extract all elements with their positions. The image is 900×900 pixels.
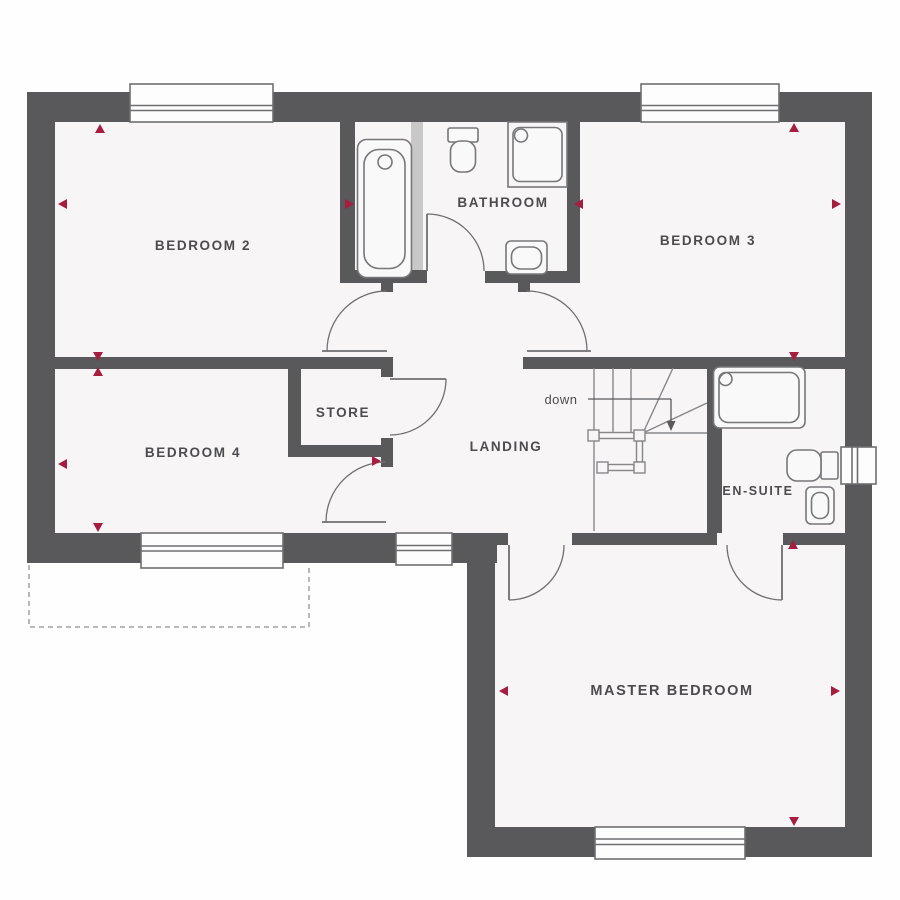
window-bedroom4-bottom bbox=[141, 533, 283, 568]
window-bedroom2-top bbox=[130, 84, 273, 122]
wall-master-top-1 bbox=[452, 533, 508, 545]
basin-ensuite-icon bbox=[806, 487, 834, 524]
wall-left bbox=[27, 92, 55, 563]
dashed-outline bbox=[29, 565, 309, 627]
handrail bbox=[599, 433, 634, 439]
window-master-bottom bbox=[595, 827, 745, 859]
room-label-bedroom2: BEDROOM 2 bbox=[155, 238, 251, 253]
room-label-landing: LANDING bbox=[470, 439, 543, 454]
floor-area bbox=[40, 100, 872, 857]
room-label-store: STORE bbox=[316, 405, 370, 420]
wall-bath-niche-east bbox=[411, 122, 423, 270]
wall-bed2-door-stub bbox=[381, 357, 393, 377]
window-ensuite-right bbox=[841, 447, 876, 484]
newel-post bbox=[588, 430, 599, 441]
floor-plan-canvas: BEDROOM 2 BATHROOM BEDROOM 3 BEDROOM 4 S… bbox=[0, 0, 900, 900]
handrail bbox=[637, 441, 643, 462]
wall-master-top-2 bbox=[572, 533, 717, 545]
wall-master-west bbox=[467, 533, 495, 857]
basin-bathroom-icon bbox=[506, 241, 547, 274]
newel-post bbox=[597, 462, 608, 473]
shower-ensuite-icon bbox=[714, 367, 806, 428]
room-label-ensuite: EN-SUITE bbox=[722, 484, 793, 498]
floor-plan: BEDROOM 2 BATHROOM BEDROOM 3 BEDROOM 4 S… bbox=[0, 0, 900, 900]
window-bedroom3-top bbox=[641, 84, 779, 122]
room-label-bedroom4: BEDROOM 4 bbox=[145, 445, 241, 460]
bath-tub-icon bbox=[358, 140, 412, 278]
room-label-master: MASTER BEDROOM bbox=[590, 683, 753, 699]
shower-bathroom-icon bbox=[508, 122, 567, 187]
handrail bbox=[608, 465, 634, 471]
toilet-bathroom-icon bbox=[448, 128, 478, 172]
wall-store-west bbox=[288, 357, 301, 457]
stairs-down-label: down bbox=[544, 392, 577, 407]
wall-bed2-bed4 bbox=[50, 357, 385, 369]
room-label-bathroom: BATHROOM bbox=[457, 195, 548, 210]
wall-store-south bbox=[288, 445, 393, 457]
newel-post bbox=[634, 462, 645, 473]
window-landing-bottom bbox=[396, 533, 452, 565]
toilet-ensuite-icon bbox=[787, 450, 838, 481]
room-label-bedroom3: BEDROOM 3 bbox=[660, 233, 756, 248]
newel-post bbox=[634, 430, 645, 441]
